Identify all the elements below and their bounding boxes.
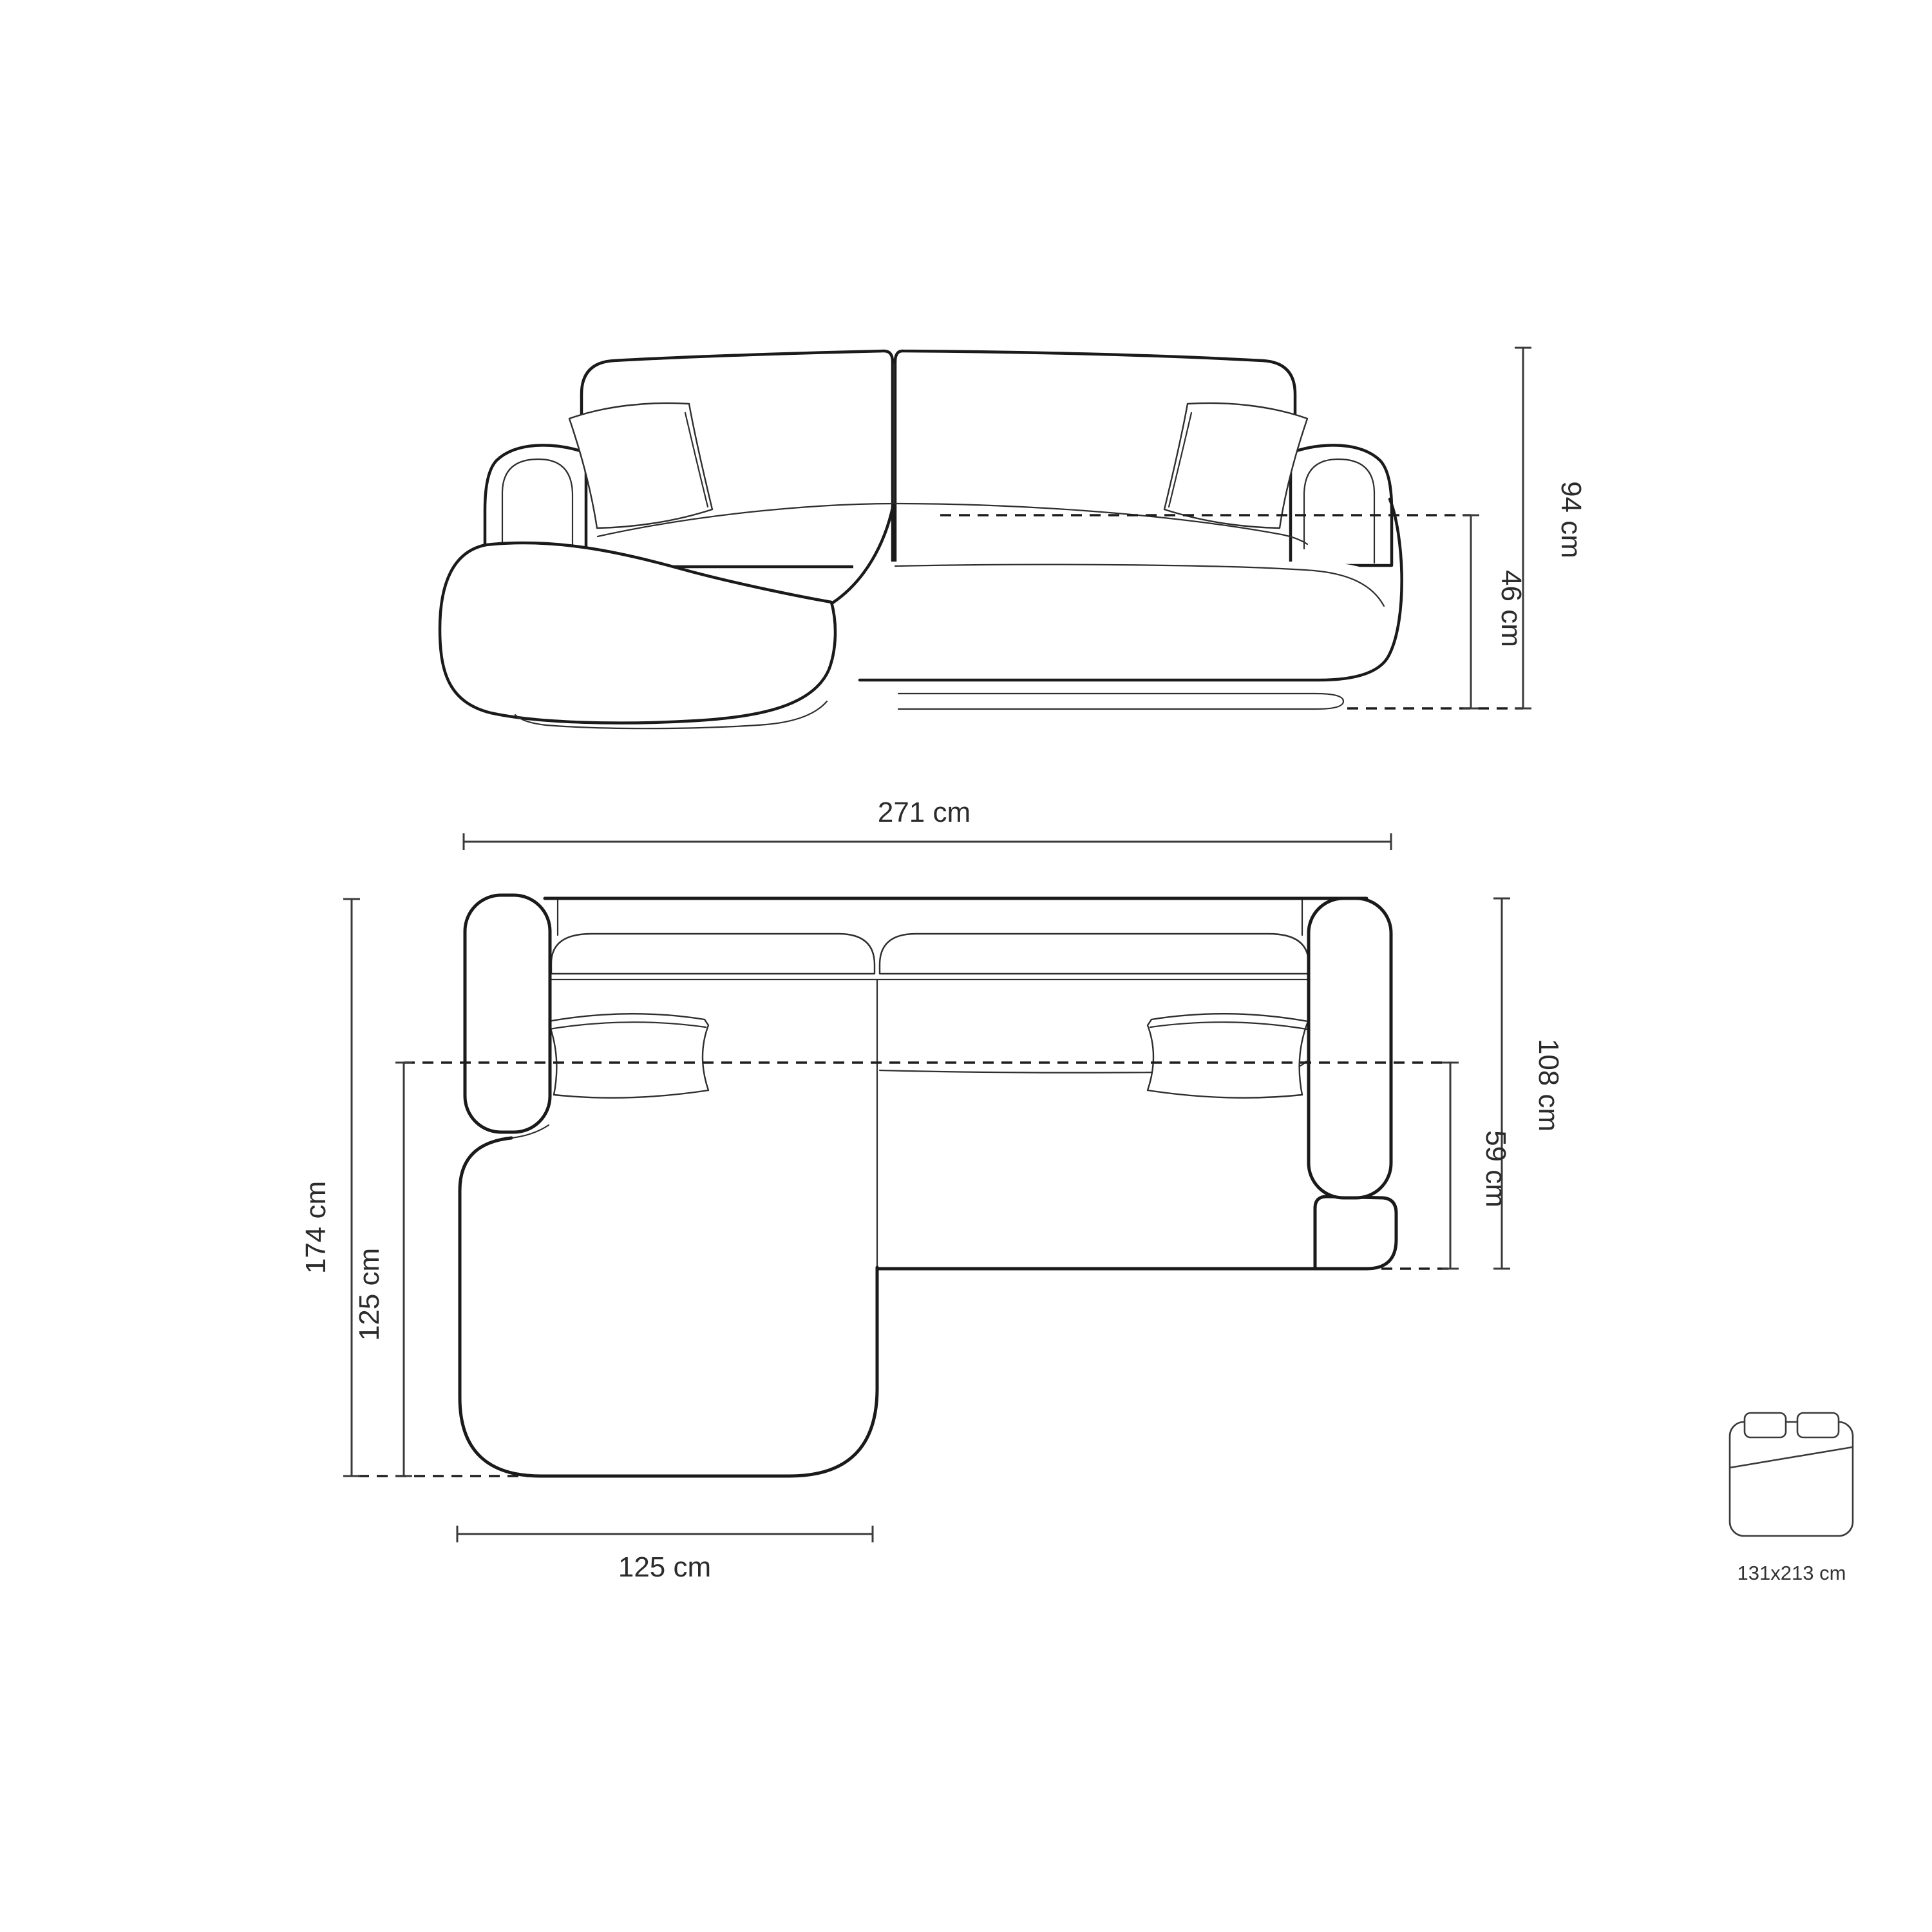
dim-chaise-width: 125 cm <box>457 1526 873 1583</box>
dim-total-width: 271 cm <box>464 797 1391 850</box>
dim-seat-height: 46 cm <box>1463 515 1527 708</box>
top-back-cushion-left <box>551 934 875 974</box>
dim-side-depth: 108 cm <box>1493 898 1564 1269</box>
diagram-canvas: 94 cm 46 cm <box>0 0 1932 1932</box>
bed-pillow-left-icon <box>1745 1413 1786 1437</box>
front-chaise <box>440 543 835 723</box>
top-right-arm <box>1309 898 1391 1198</box>
front-right-plinth <box>898 694 1343 709</box>
dim-total-height: 94 cm <box>1515 348 1587 708</box>
bed-outline <box>1730 1422 1853 1536</box>
top-corner-module <box>1315 1197 1396 1269</box>
bed-pillow-right-icon <box>1797 1413 1839 1437</box>
bed-sheet-fold-line <box>1730 1447 1853 1468</box>
dim-chaise-length-label: 125 cm <box>354 1248 385 1341</box>
top-left-arm <box>465 895 550 1132</box>
top-right-pillow <box>1148 1014 1308 1097</box>
top-view: 271 cm 174 cm 125 cm 108 cm 59 c <box>300 797 1564 1583</box>
dim-chaise-length: 125 cm <box>354 1063 412 1476</box>
top-back-cushion-right <box>880 934 1309 974</box>
dim-total-width-label: 271 cm <box>878 797 971 828</box>
front-right-arm <box>1291 445 1392 565</box>
dim-total-height-label: 94 cm <box>1555 481 1587 558</box>
dim-seat-depth-label: 59 cm <box>1480 1130 1511 1207</box>
front-view: 94 cm 46 cm <box>440 348 1587 728</box>
dim-seat-height-label: 46 cm <box>1495 570 1527 647</box>
sleeping-area-label: 131x213 cm <box>1738 1562 1846 1584</box>
top-chaise-outline <box>460 1138 877 1476</box>
front-right-body-fill <box>853 562 1403 680</box>
dim-side-depth-label: 108 cm <box>1533 1039 1564 1132</box>
sofa-dimension-diagram: 94 cm 46 cm <box>0 0 1932 1932</box>
dim-total-depth-label: 174 cm <box>300 1181 332 1274</box>
sofa-bed-icon: 131x213 cm <box>1730 1413 1853 1584</box>
dim-total-depth: 174 cm <box>300 899 360 1476</box>
top-left-pillow <box>548 1014 708 1097</box>
dim-chaise-width-label: 125 cm <box>618 1551 711 1583</box>
